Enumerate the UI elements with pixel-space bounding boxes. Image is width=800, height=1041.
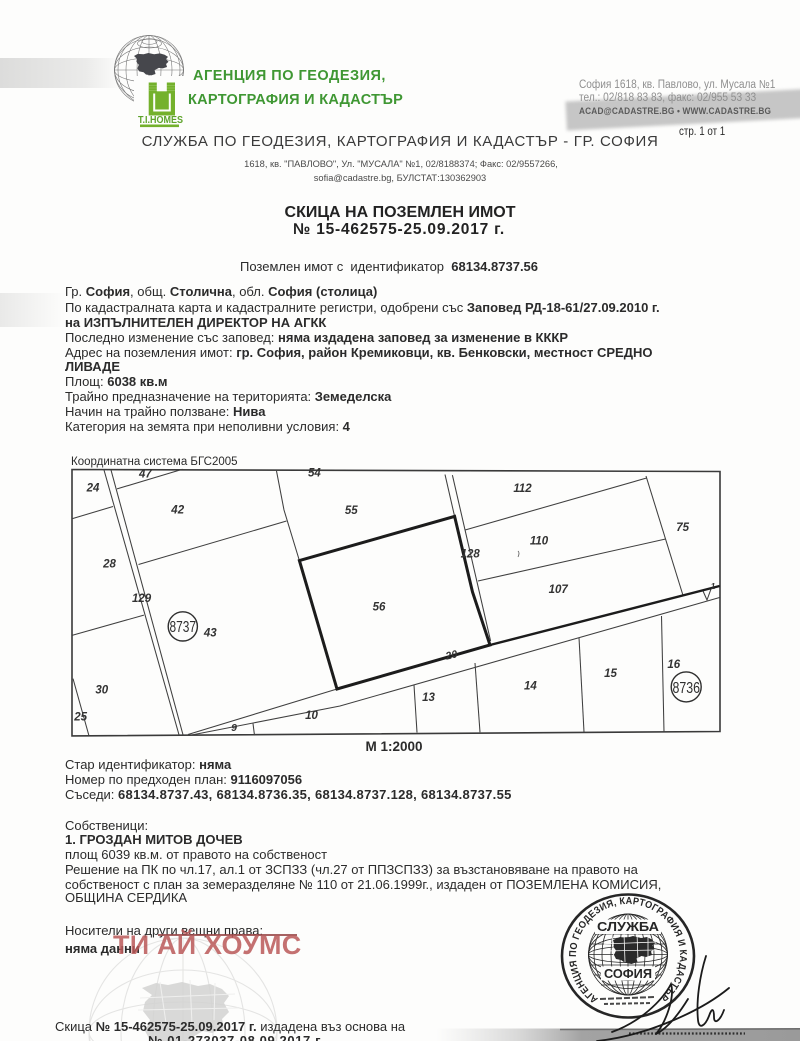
svg-text:8737: 8737 (170, 619, 197, 636)
svg-text:10: 10 (305, 710, 318, 722)
svg-text:8736: 8736 (672, 680, 700, 697)
svg-text:43: 43 (203, 628, 217, 640)
svg-text:42: 42 (170, 504, 184, 516)
svg-text:110: 110 (530, 536, 549, 548)
svg-text:13: 13 (422, 692, 435, 704)
svg-text:24: 24 (86, 483, 100, 495)
svg-text:СОФИЯ: СОФИЯ (604, 967, 652, 981)
svg-text:54: 54 (308, 468, 321, 480)
svg-text:14: 14 (524, 681, 537, 693)
svg-text:20: 20 (444, 648, 459, 663)
svg-text:СЛУЖБА: СЛУЖБА (597, 920, 659, 934)
svg-text:28: 28 (102, 559, 116, 571)
svg-text:128: 128 (461, 549, 481, 561)
svg-text:T.I.HOMES: T.I.HOMES (138, 114, 183, 126)
svg-text:56: 56 (373, 602, 386, 614)
svg-text:47: 47 (138, 469, 152, 481)
svg-text:16: 16 (667, 659, 680, 671)
svg-text:1: 1 (711, 582, 716, 591)
svg-text:112: 112 (513, 483, 532, 495)
svg-text:30: 30 (95, 684, 108, 696)
svg-text:55: 55 (345, 505, 358, 517)
svg-text:129: 129 (132, 593, 152, 605)
svg-text:75: 75 (676, 522, 689, 534)
svg-text:15: 15 (604, 668, 617, 680)
svg-text:25: 25 (73, 712, 87, 724)
svg-text:107: 107 (549, 584, 569, 596)
svg-text:9: 9 (231, 722, 237, 734)
